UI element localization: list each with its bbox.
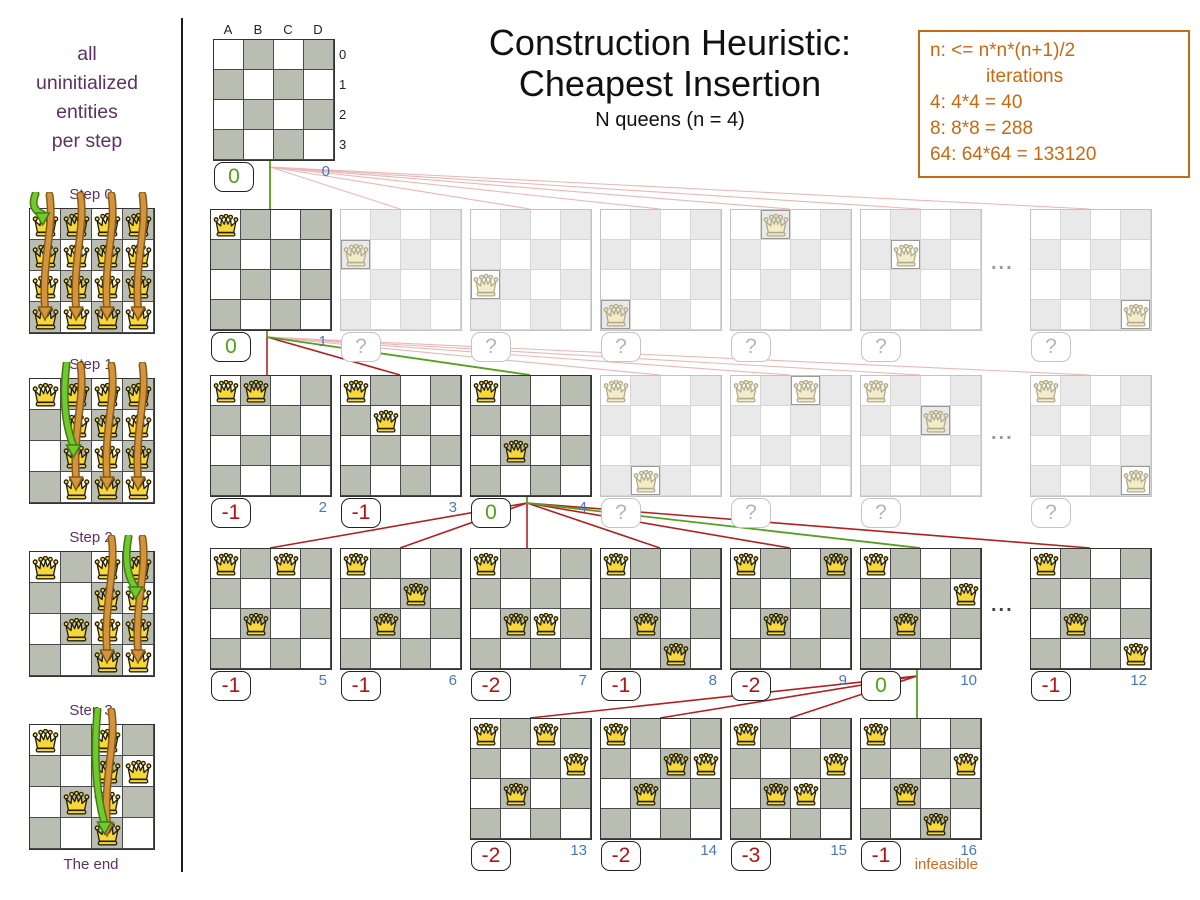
queen-icon bbox=[1123, 304, 1149, 328]
board-cell bbox=[951, 639, 981, 669]
queen-icon bbox=[503, 783, 529, 807]
queen-icon bbox=[213, 553, 239, 577]
board-cell bbox=[951, 376, 981, 406]
board-cell bbox=[631, 270, 661, 300]
board-cell bbox=[661, 270, 691, 300]
chessboard-c6 bbox=[860, 375, 982, 497]
queen bbox=[403, 583, 429, 612]
board-cell bbox=[401, 549, 431, 579]
queen-icon bbox=[693, 753, 719, 777]
board-cell bbox=[631, 749, 661, 779]
board-cell bbox=[791, 240, 821, 270]
queen-icon bbox=[923, 813, 949, 837]
board-cell bbox=[891, 809, 921, 839]
board-cell bbox=[561, 210, 591, 240]
range-arrowhead-icon bbox=[101, 650, 114, 663]
queen bbox=[893, 244, 919, 273]
board-cell bbox=[561, 270, 591, 300]
queen-icon bbox=[473, 274, 499, 298]
board-cell bbox=[301, 549, 331, 579]
board-cell bbox=[791, 579, 821, 609]
board-cell bbox=[691, 300, 721, 330]
queen bbox=[533, 613, 559, 642]
row-label: 1 bbox=[339, 77, 346, 92]
board-cell bbox=[921, 749, 951, 779]
chessboard-d2 bbox=[340, 548, 462, 670]
board-cell bbox=[891, 549, 921, 579]
board-cell bbox=[761, 376, 791, 406]
queen bbox=[1123, 643, 1149, 672]
board-cell bbox=[631, 639, 661, 669]
queen bbox=[243, 613, 269, 642]
board-cell bbox=[304, 70, 334, 100]
board-cell bbox=[241, 270, 271, 300]
board-cell bbox=[631, 240, 661, 270]
queen bbox=[1123, 304, 1149, 333]
board-cell bbox=[341, 639, 371, 669]
board-cell bbox=[731, 749, 761, 779]
queen bbox=[343, 553, 369, 582]
board-cell bbox=[951, 270, 981, 300]
board-cell bbox=[791, 549, 821, 579]
queen-icon bbox=[503, 440, 529, 464]
board-cell bbox=[951, 549, 981, 579]
board-cell bbox=[921, 210, 951, 240]
queen-icon bbox=[1123, 643, 1149, 667]
board-cell bbox=[241, 466, 271, 496]
board-cell bbox=[471, 436, 501, 466]
iteration-number: 5 bbox=[272, 672, 327, 689]
board-cell bbox=[951, 809, 981, 839]
board-cell bbox=[531, 240, 561, 270]
score-badge: ? bbox=[341, 332, 381, 362]
board-cell bbox=[631, 809, 661, 839]
board-cell bbox=[401, 270, 431, 300]
board-cell bbox=[1061, 376, 1091, 406]
chessboard-d4 bbox=[600, 548, 722, 670]
board-cell bbox=[501, 749, 531, 779]
board-cell bbox=[661, 466, 691, 496]
board-cell bbox=[561, 809, 591, 839]
chessboard-d7 bbox=[1030, 548, 1152, 670]
board-cell bbox=[501, 719, 531, 749]
board-cell bbox=[631, 579, 661, 609]
queen bbox=[663, 753, 689, 782]
range-arrowhead-icon bbox=[132, 477, 145, 490]
ellipsis: ... bbox=[991, 422, 1014, 445]
queen-icon bbox=[893, 783, 919, 807]
board-cell bbox=[431, 609, 461, 639]
board-cell bbox=[761, 639, 791, 669]
board-cell bbox=[501, 300, 531, 330]
board-cell bbox=[761, 466, 791, 496]
score-badge: -2 bbox=[471, 841, 511, 871]
board-cell bbox=[691, 779, 721, 809]
queen bbox=[763, 214, 789, 243]
queen-icon bbox=[663, 643, 689, 667]
board-cell bbox=[561, 719, 591, 749]
queen bbox=[373, 613, 399, 642]
range-arrowhead-icon bbox=[101, 307, 114, 320]
link-potential bbox=[270, 167, 790, 209]
iteration-number: 10 bbox=[922, 672, 977, 689]
chessboard-b6 bbox=[860, 209, 982, 331]
board-cell bbox=[951, 609, 981, 639]
board-cell bbox=[921, 466, 951, 496]
board-cell bbox=[531, 466, 561, 496]
board-cell bbox=[341, 300, 371, 330]
info-line: 4: 4*4 = 40 bbox=[930, 90, 1188, 116]
board-cell bbox=[761, 719, 791, 749]
board-cell bbox=[371, 300, 401, 330]
score-badge: 0 bbox=[471, 498, 511, 528]
board-cell bbox=[341, 609, 371, 639]
board-cell bbox=[1091, 639, 1121, 669]
board-cell bbox=[891, 210, 921, 240]
board-cell bbox=[431, 549, 461, 579]
board-cell bbox=[631, 406, 661, 436]
info-line: 64: 64*64 = 133120 bbox=[930, 142, 1188, 168]
board-cell bbox=[304, 100, 334, 130]
board-cell bbox=[531, 549, 561, 579]
board-cell bbox=[211, 579, 241, 609]
board-cell bbox=[921, 270, 951, 300]
queen bbox=[343, 380, 369, 409]
board-cell bbox=[1091, 270, 1121, 300]
board-cell bbox=[861, 749, 891, 779]
column-label: D bbox=[303, 22, 333, 37]
board-cell bbox=[431, 376, 461, 406]
board-cell bbox=[821, 270, 851, 300]
board-cell bbox=[891, 436, 921, 466]
board-cell bbox=[921, 240, 951, 270]
board-cell bbox=[1031, 609, 1061, 639]
board-cell bbox=[761, 270, 791, 300]
queen bbox=[823, 753, 849, 782]
board-cell bbox=[401, 406, 431, 436]
board-cell bbox=[791, 270, 821, 300]
score-badge: -1 bbox=[211, 671, 251, 701]
queen bbox=[533, 723, 559, 752]
board-cell bbox=[244, 130, 274, 160]
score-badge: 0 bbox=[861, 671, 901, 701]
board-cell bbox=[1061, 549, 1091, 579]
board-cell bbox=[951, 300, 981, 330]
queen-icon bbox=[563, 753, 589, 777]
board-cell bbox=[1061, 466, 1091, 496]
board-cell bbox=[861, 240, 891, 270]
board-cell bbox=[1061, 579, 1091, 609]
board-cell bbox=[301, 210, 331, 240]
board-cell bbox=[1121, 406, 1151, 436]
board-cell bbox=[1061, 270, 1091, 300]
board-cell bbox=[244, 70, 274, 100]
chessboard-e1 bbox=[470, 718, 592, 840]
board-cell bbox=[951, 406, 981, 436]
board-cell bbox=[1121, 579, 1151, 609]
board-cell bbox=[691, 579, 721, 609]
queen bbox=[633, 783, 659, 812]
board-cell bbox=[271, 210, 301, 240]
board-cell bbox=[1091, 300, 1121, 330]
row-label: 3 bbox=[339, 137, 346, 152]
queen bbox=[663, 643, 689, 672]
board-cell bbox=[501, 406, 531, 436]
board-cell bbox=[891, 300, 921, 330]
board-cell bbox=[1091, 436, 1121, 466]
queen bbox=[243, 380, 269, 409]
board-cell bbox=[731, 436, 761, 466]
queen bbox=[863, 723, 889, 752]
board-cell bbox=[1031, 639, 1061, 669]
chessboard-b4 bbox=[600, 209, 722, 331]
board-cell bbox=[341, 466, 371, 496]
board-cell bbox=[341, 436, 371, 466]
iteration-number: 4 bbox=[532, 499, 587, 516]
board-cell bbox=[821, 779, 851, 809]
board-cell bbox=[271, 579, 301, 609]
board-cell bbox=[821, 300, 851, 330]
queen-icon bbox=[793, 380, 819, 404]
score-badge: ? bbox=[731, 498, 771, 528]
board-cell bbox=[691, 240, 721, 270]
board-cell bbox=[371, 240, 401, 270]
queen-icon bbox=[533, 613, 559, 637]
board-cell bbox=[1031, 210, 1061, 240]
board-cell bbox=[601, 210, 631, 240]
queen-icon bbox=[863, 380, 889, 404]
board-cell bbox=[861, 809, 891, 839]
board-cell bbox=[431, 300, 461, 330]
board-cell bbox=[531, 639, 561, 669]
board-cell bbox=[211, 639, 241, 669]
board-cell bbox=[661, 300, 691, 330]
board-cell bbox=[211, 436, 241, 466]
board-cell bbox=[1031, 406, 1061, 436]
board-cell bbox=[791, 300, 821, 330]
board-cell bbox=[691, 466, 721, 496]
board-cell bbox=[1121, 240, 1151, 270]
queen bbox=[893, 613, 919, 642]
board-cell bbox=[531, 436, 561, 466]
iteration-number: 6 bbox=[402, 672, 457, 689]
board-cell bbox=[1121, 376, 1151, 406]
queen-icon bbox=[893, 244, 919, 268]
queen bbox=[763, 613, 789, 642]
queen-icon bbox=[403, 583, 429, 607]
board-cell bbox=[661, 579, 691, 609]
board-cell bbox=[371, 376, 401, 406]
board-cell bbox=[401, 609, 431, 639]
link-potential bbox=[270, 167, 920, 209]
queen-icon bbox=[1033, 553, 1059, 577]
board-cell bbox=[661, 406, 691, 436]
board-cell bbox=[214, 70, 244, 100]
board-cell bbox=[211, 406, 241, 436]
board-cell bbox=[501, 240, 531, 270]
queen bbox=[473, 553, 499, 582]
board-cell bbox=[1061, 436, 1091, 466]
score-badge: ? bbox=[471, 332, 511, 362]
board-cell bbox=[691, 210, 721, 240]
queen-icon bbox=[1033, 380, 1059, 404]
board-cell bbox=[561, 466, 591, 496]
board-cell bbox=[861, 436, 891, 466]
board-cell bbox=[301, 376, 331, 406]
board-cell bbox=[791, 749, 821, 779]
board-cell bbox=[691, 809, 721, 839]
queen bbox=[373, 410, 399, 439]
board-cell bbox=[401, 376, 431, 406]
board-cell bbox=[1061, 300, 1091, 330]
board-cell bbox=[1031, 466, 1061, 496]
board-cell bbox=[601, 466, 631, 496]
board-cell bbox=[431, 466, 461, 496]
board-cell bbox=[601, 779, 631, 809]
board-cell bbox=[731, 639, 761, 669]
board-cell bbox=[921, 719, 951, 749]
chessboard-b2 bbox=[340, 209, 462, 331]
queen bbox=[503, 783, 529, 812]
board-cell bbox=[731, 579, 761, 609]
board-cell bbox=[271, 406, 301, 436]
score-badge: -1 bbox=[1031, 671, 1071, 701]
board-cell bbox=[861, 779, 891, 809]
iteration-number: 3 bbox=[402, 499, 457, 516]
board-cell bbox=[921, 779, 951, 809]
board-cell bbox=[531, 749, 561, 779]
vertical-divider bbox=[181, 18, 183, 872]
board-cell bbox=[531, 809, 561, 839]
info-line: iterations bbox=[930, 64, 1188, 90]
chessboard-e2 bbox=[600, 718, 722, 840]
queen-icon bbox=[863, 723, 889, 747]
board-cell bbox=[661, 809, 691, 839]
board-cell bbox=[471, 210, 501, 240]
board-cell bbox=[471, 749, 501, 779]
board-cell bbox=[274, 40, 304, 70]
range-arrowhead-icon bbox=[132, 650, 145, 663]
queen bbox=[633, 470, 659, 499]
board-cell bbox=[631, 300, 661, 330]
board-cell bbox=[241, 240, 271, 270]
board-cell bbox=[891, 579, 921, 609]
score-badge: ? bbox=[731, 332, 771, 362]
queen-icon bbox=[953, 583, 979, 607]
board-cell bbox=[241, 300, 271, 330]
board-cell bbox=[921, 579, 951, 609]
queen bbox=[473, 274, 499, 303]
board-cell bbox=[761, 549, 791, 579]
queen-icon bbox=[343, 380, 369, 404]
board-cell bbox=[601, 270, 631, 300]
board-cell bbox=[861, 639, 891, 669]
queen-icon bbox=[733, 723, 759, 747]
board-cell bbox=[601, 609, 631, 639]
board-cell bbox=[431, 639, 461, 669]
chessboard-c3 bbox=[470, 375, 592, 497]
queen bbox=[213, 553, 239, 582]
board-cell bbox=[241, 210, 271, 240]
queen bbox=[603, 380, 629, 409]
board-cell bbox=[271, 639, 301, 669]
board-cell bbox=[731, 300, 761, 330]
board-cell bbox=[821, 719, 851, 749]
queen-icon bbox=[1123, 470, 1149, 494]
queen bbox=[893, 783, 919, 812]
board-cell bbox=[891, 406, 921, 436]
chessboard-d3 bbox=[470, 548, 592, 670]
queen bbox=[953, 583, 979, 612]
board-cell bbox=[274, 130, 304, 160]
queen-icon bbox=[733, 553, 759, 577]
chessboard-b3 bbox=[470, 209, 592, 331]
board-cell bbox=[501, 809, 531, 839]
iteration-number: 13 bbox=[532, 842, 587, 859]
board-cell bbox=[371, 466, 401, 496]
queen bbox=[693, 753, 719, 782]
column-label: B bbox=[243, 22, 273, 37]
board-cell bbox=[561, 406, 591, 436]
board-cell bbox=[861, 406, 891, 436]
board-cell bbox=[791, 639, 821, 669]
queen-icon bbox=[633, 783, 659, 807]
board-cell bbox=[731, 210, 761, 240]
score-badge: ? bbox=[861, 332, 901, 362]
chessboard-root bbox=[213, 39, 335, 161]
board-cell bbox=[241, 639, 271, 669]
board-cell bbox=[921, 436, 951, 466]
board-cell bbox=[371, 210, 401, 240]
board-cell bbox=[1031, 300, 1061, 330]
queen bbox=[793, 380, 819, 409]
chessboard-d1 bbox=[210, 548, 332, 670]
board-cell bbox=[761, 406, 791, 436]
board-cell bbox=[661, 436, 691, 466]
board-cell bbox=[601, 436, 631, 466]
board-cell bbox=[271, 436, 301, 466]
queen bbox=[473, 380, 499, 409]
board-cell bbox=[431, 579, 461, 609]
board-cell bbox=[501, 466, 531, 496]
board-cell bbox=[341, 270, 371, 300]
board-cell bbox=[921, 376, 951, 406]
board-cell bbox=[531, 406, 561, 436]
caption-line: per step bbox=[8, 127, 166, 156]
board-cell bbox=[1061, 240, 1091, 270]
board-cell bbox=[821, 376, 851, 406]
board-cell bbox=[271, 376, 301, 406]
queen bbox=[953, 753, 979, 782]
board-cell bbox=[761, 240, 791, 270]
board-cell bbox=[301, 579, 331, 609]
board-cell bbox=[1121, 270, 1151, 300]
board-cell bbox=[531, 376, 561, 406]
board-cell bbox=[691, 719, 721, 749]
queen-icon bbox=[373, 410, 399, 434]
board-cell bbox=[821, 639, 851, 669]
queen-icon bbox=[213, 214, 239, 238]
queen-icon bbox=[823, 553, 849, 577]
board-cell bbox=[601, 749, 631, 779]
queen bbox=[273, 553, 299, 582]
board-cell bbox=[301, 466, 331, 496]
board-cell bbox=[471, 466, 501, 496]
queen bbox=[1033, 380, 1059, 409]
board-cell bbox=[501, 549, 531, 579]
board-cell bbox=[951, 779, 981, 809]
board-cell bbox=[341, 406, 371, 436]
